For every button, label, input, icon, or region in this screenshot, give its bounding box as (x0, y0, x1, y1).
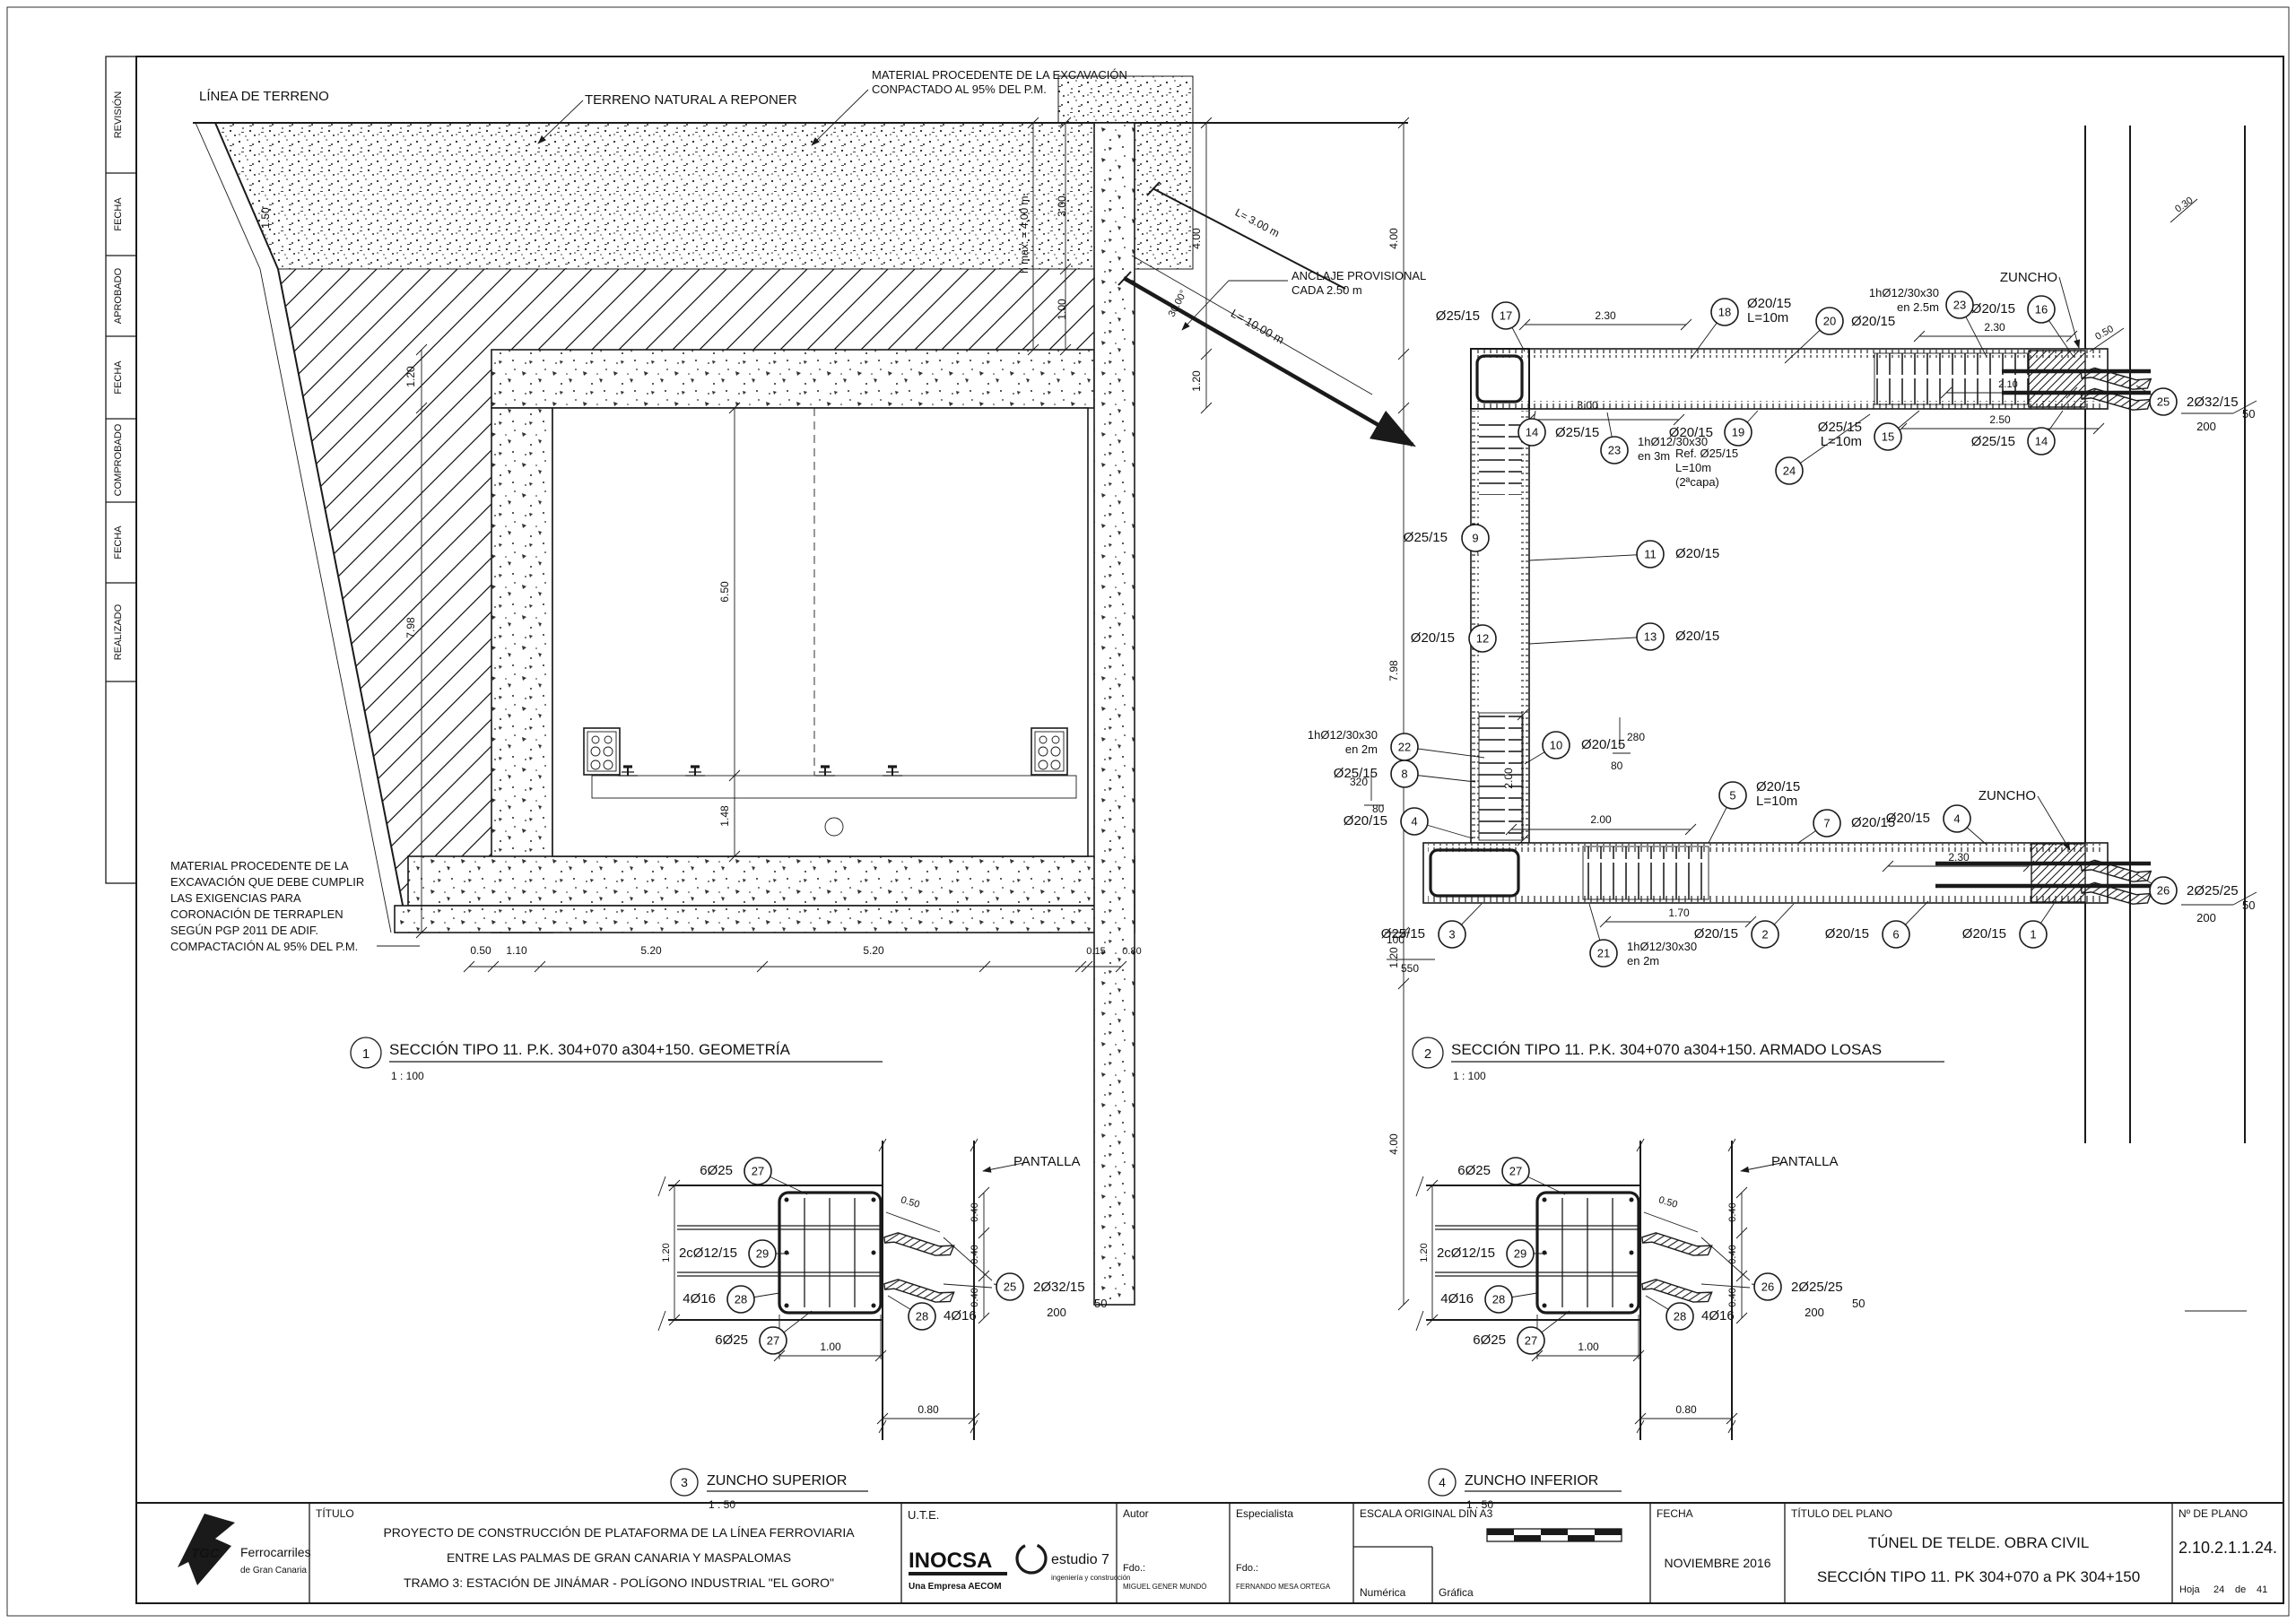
rebar-callout: 2 (1752, 904, 1794, 948)
annotation-label: 1.20 (1190, 370, 1203, 392)
callout-number: 15 (1882, 430, 1894, 444)
annotation-label: SEGÚN PGP 2011 DE ADIF. (170, 924, 318, 937)
drawing-title: SECCIÓN TIPO 11. P.K. 304+070 a304+150. … (1451, 1041, 1882, 1058)
rebar-callout: 25 (994, 1273, 1023, 1300)
annotation-label: Ø20/15 (1971, 301, 2015, 317)
callout-number: 24 (1783, 464, 1796, 478)
callout-number: 23 (1608, 444, 1621, 457)
annotation-label: 2.00 (1590, 813, 1612, 826)
drawing-title: ZUNCHO SUPERIOR (707, 1473, 847, 1488)
annotation-label: 7.98 (1387, 660, 1400, 681)
annotation-label: MATERIAL PROCEDENTE DE LA (170, 859, 349, 872)
callout-number: 2 (1761, 928, 1768, 942)
annotation-label: 0.40 (970, 1202, 980, 1221)
annotation-label: 1.20 (404, 366, 417, 387)
annotation-label: 1.70 (1668, 907, 1690, 919)
annotation-label: 50 (1852, 1297, 1865, 1310)
annotation-label: Ø20/15 (1411, 630, 1455, 646)
annotation-label: 3.00 (1577, 399, 1598, 412)
annotation-label: 5.20 (640, 944, 662, 957)
annotation-label: Ø25/15 (1971, 434, 2015, 449)
rebar-callout: 27 (1518, 1311, 1570, 1354)
rebar-callout: 28 (888, 1296, 935, 1330)
annotation-label: L=10m (1747, 310, 1788, 325)
annotation-label: Ø20/15 (1756, 779, 1800, 794)
callout-number: 17 (1500, 309, 1512, 323)
annotation-label: 1.20 (1419, 1243, 1430, 1262)
plan-sheet: REVISIÓN FECHA APROBADO FECHA COMPROBADO… (0, 0, 2296, 1623)
annotation-label: 2Ø25/25 (1791, 1280, 1843, 1295)
callout-number: 3 (1448, 928, 1455, 942)
annotation-label: 2.30 (1984, 321, 2005, 334)
numerica-label: Numérica (1360, 1586, 1406, 1599)
estudio7-logo-icon (1017, 1544, 1046, 1573)
callout-number: 7 (1823, 817, 1830, 830)
annotation-label: 4Ø16 (683, 1291, 716, 1306)
annotation-label: 550 (1401, 962, 1419, 975)
annotation-label: 1.00 (1056, 299, 1068, 320)
plano-line1: TÚNEL DE TELDE. OBRA CIVIL (1868, 1534, 2090, 1551)
annotation-label: 200 (2196, 420, 2216, 433)
annotation-label: CADA 2.50 m (1291, 283, 1362, 297)
callout-number: 10 (1550, 739, 1562, 752)
annotation-label: COMPACTACIÓN AL 95% DEL P.M. (170, 940, 358, 953)
annotation-label: Ø20/15 (1851, 314, 1895, 329)
rebar-callout: 6 (1883, 901, 1928, 948)
annotation-label: Ø20/15 (1747, 296, 1791, 311)
annotation-label: 4.00 (1387, 1133, 1400, 1155)
inocsa-sub: Una Empresa AECOM (909, 1582, 1002, 1592)
rebar-callout: 13 (1529, 623, 1664, 650)
autor-fdo: Fdo.: (1123, 1563, 1145, 1574)
callout-number: 23 (1953, 299, 1966, 312)
annotation-label: 0.80 (1675, 1403, 1697, 1416)
annotation-label: 0.15 (1086, 946, 1105, 957)
annotation-label: 0.50 (1657, 1194, 1679, 1210)
annotation-label: CORONACIÓN DE TERRAPLEN (170, 907, 344, 921)
annotation-label: Ø20/15 (1962, 926, 2006, 942)
annotation-label: 1.20 (1387, 947, 1400, 968)
annotation-label: 1.20 (661, 1243, 672, 1262)
annotation-label: 2cØ12/15 (679, 1245, 737, 1261)
project-title-line2: ENTRE LAS PALMAS DE GRAN CANARIA Y MASPA… (447, 1550, 791, 1565)
callout-number: 14 (1526, 426, 1538, 439)
annotation-label: en 2.5m (1897, 300, 1939, 314)
annotation-label: 80 (1611, 759, 1623, 772)
estudio7-logo: estudio 7 (1051, 1552, 1109, 1567)
annotation-label: h max. = 4.00 m. (1018, 193, 1031, 273)
annotation-label: 2.30 (1948, 851, 1970, 864)
annotation-label: Ø20/15 (1694, 926, 1738, 942)
rebar-callout: 28 (1485, 1286, 1537, 1313)
annotation-label: 2cØ12/15 (1437, 1245, 1495, 1261)
drawing-number: 3 (681, 1475, 688, 1489)
rebar-callout: 10 (1525, 732, 1570, 764)
rebar-callout: 1 (2020, 901, 2056, 948)
annotation-label: 0.50 (2093, 324, 2116, 343)
ute-label: U.T.E. (908, 1508, 939, 1522)
callout-number: 28 (1492, 1293, 1505, 1306)
project-title-line1: PROYECTO DE CONSTRUCCIÓN DE PLATAFORMA D… (383, 1525, 855, 1540)
annotation-label: 6Ø25 (700, 1163, 733, 1178)
drawing-title: ZUNCHO INFERIOR (1465, 1473, 1598, 1488)
annotation-label: EXCAVACIÓN QUE DEBE CUMPLIR (170, 875, 364, 889)
annotation-label: Ø20/15 (1344, 813, 1387, 829)
annotation-label: 0.50 (470, 944, 491, 957)
annotation-label: 1.50 (259, 207, 272, 229)
callout-number: 26 (1761, 1280, 1774, 1294)
callout-number: 14 (2035, 435, 2048, 448)
annotation-label: L=10m (1675, 461, 1711, 474)
annotation-label: 4Ø16 (944, 1308, 977, 1324)
sidebar-label: APROBADO (113, 267, 124, 324)
annotation-label: 1.00 (820, 1341, 841, 1353)
annotation-label: 0.40 (1727, 1288, 1738, 1306)
rebar-callout: 27 (1502, 1158, 1565, 1194)
callout-number: 16 (2035, 303, 2048, 317)
callout-number: 26 (2157, 884, 2170, 898)
rebar-callout: 21 (1589, 904, 1617, 967)
annotation-label: 2.00 (1502, 768, 1515, 789)
annotation-label: (2ªcapa) (1675, 475, 1719, 489)
rebar-callout: 4 (1944, 805, 1987, 845)
annotation-label: 1hØ12/30x30 (1627, 940, 1697, 953)
rebar-callout: 28 (727, 1286, 779, 1313)
annotation-label: 2.10 (1998, 379, 2017, 390)
rebar-callout: 11 (1529, 541, 1664, 568)
inocsa-logo: INOCSA (909, 1549, 992, 1573)
rebar-callout: 7 (1798, 810, 1840, 843)
annotation-label: 0.80 (1122, 946, 1141, 957)
sidebar-label: COMPROBADO (113, 423, 124, 496)
rebar-callout: 8 (1391, 760, 1475, 787)
rebar-callout: 12 (1469, 625, 1496, 653)
callout-number: 29 (1514, 1247, 1526, 1261)
annotation-label: 50 (2242, 898, 2255, 912)
project-title-line3: TRAMO 3: ESTACIÓN DE JINÁMAR - POLÍGONO … (404, 1575, 834, 1590)
plan-canvas: REVISIÓN FECHA APROBADO FECHA COMPROBADO… (0, 0, 2296, 1623)
callout-number: 27 (1509, 1165, 1522, 1178)
autor-label: Autor (1123, 1507, 1149, 1520)
callout-number: 27 (767, 1334, 779, 1348)
annotation-label: Ø25/15 (1555, 425, 1599, 440)
rebar-callout: 29 (749, 1240, 789, 1267)
tgc-logo-text: TGC (191, 1546, 221, 1561)
sidebar-label: FECHA (113, 525, 124, 560)
callout-number: 21 (1597, 947, 1610, 960)
annotation-label: ZUNCHO (1979, 788, 2036, 803)
annotation-label: 0.40 (1727, 1245, 1738, 1263)
revision-sidebar: REVISIÓN FECHA APROBADO FECHA COMPROBADO… (112, 91, 124, 661)
annotation-label: Ø25/15 (1436, 308, 1480, 324)
graphic-scale-bar (1487, 1529, 1622, 1541)
annotation-label: 0.40 (1727, 1202, 1738, 1221)
rebar-callout: 3 (1439, 904, 1482, 948)
annotation-label: en 2m (1627, 954, 1659, 968)
hoja-num: 24 (2213, 1584, 2224, 1595)
annotation-label: PANTALLA (1013, 1154, 1080, 1169)
callout-number: 25 (2157, 395, 2170, 409)
annotation-label: Ø20/15 (1581, 737, 1625, 752)
drawing-scale: 1 : 100 (391, 1070, 424, 1082)
annotation-label: TERRENO NATURAL A REPONER (585, 92, 797, 108)
annotation-label: 4.00 (1387, 228, 1400, 249)
rebar-callout: 26 (1752, 1273, 1781, 1300)
annotation-label: en 3m (1638, 449, 1670, 463)
section-2-reinforcement-drawing (1364, 126, 2257, 1311)
plano-line2: SECCIÓN TIPO 11. PK 304+070 a PK 304+150 (1817, 1568, 2140, 1585)
annotation-label: 6.50 (718, 581, 731, 603)
callout-number: 20 (1823, 315, 1836, 328)
tgc-logo-line1: Ferrocarriles (240, 1545, 311, 1559)
rebar-callout: 27 (744, 1158, 807, 1194)
annotation-label: ZUNCHO (2000, 270, 2057, 285)
annotation-label: LAS EXIGENCIAS PARA (170, 891, 301, 905)
annotation-label: Ø20/15 (1886, 811, 1930, 826)
annotation-label: 200 (1805, 1306, 1824, 1319)
annotation-label: 0.40 (970, 1245, 980, 1263)
callout-number: 25 (1004, 1280, 1016, 1294)
rebar-callout: 29 (1507, 1240, 1547, 1267)
rebar-callout: 19 (1725, 411, 1758, 446)
callout-number: 19 (1732, 426, 1744, 439)
rebar-callout: 14 (2028, 411, 2063, 455)
callout-number: 5 (1729, 789, 1735, 803)
annotation-label: 0.30 (2173, 195, 2195, 214)
annotation-label: 200 (1047, 1306, 1066, 1319)
annotation-label: 6Ø25 (1457, 1163, 1491, 1178)
annotation-label: 2.50 (1989, 413, 2011, 426)
autor-name: MIGUEL GENER MUNDÓ (1123, 1583, 1207, 1591)
rebar-callout: 28 (1646, 1296, 1693, 1330)
callout-number: 28 (735, 1293, 747, 1306)
annotation-label: Ø25/15 (1404, 530, 1448, 545)
callout-number: 18 (1718, 306, 1731, 319)
callout-number: 28 (1674, 1310, 1686, 1324)
annotation-label: en 2m (1345, 742, 1378, 756)
annotation-label: 50 (1094, 1297, 1107, 1310)
callout-number: 4 (1953, 812, 1960, 826)
annotation-label: 0.40 (970, 1288, 980, 1306)
num-plano-value: 2.10.2.1.1.24. (2179, 1539, 2277, 1557)
drawing-scale: 1 : 50 (709, 1498, 735, 1511)
annotation-label: Ø20/15 (1675, 546, 1719, 561)
especialista-name: FERNANDO MESA ORTEGA (1236, 1583, 1331, 1591)
especialista-label: Especialista (1236, 1507, 1293, 1520)
estudio7-sub: ingeniería y construcción (1051, 1574, 1131, 1582)
callout-number: 6 (1892, 928, 1899, 942)
callout-number: 27 (752, 1165, 764, 1178)
annotation-label: Ø20/15 (1669, 425, 1713, 440)
annotation-label: Ø25/15 (1818, 420, 1862, 435)
annotation-label: 1.48 (718, 805, 731, 827)
drawing-scale: 1 : 100 (1453, 1070, 1486, 1082)
callout-number: 12 (1476, 632, 1489, 646)
callout-number: 29 (756, 1247, 769, 1261)
num-plano-label: Nº DE PLANO (2179, 1507, 2248, 1520)
total-num: 41 (2257, 1584, 2267, 1595)
callout-number: 1 (2030, 928, 2036, 942)
sidebar-label: FECHA (113, 360, 124, 395)
drawing-title: SECCIÓN TIPO 11. P.K. 304+070 a304+150. … (389, 1041, 791, 1058)
annotation-label: PANTALLA (1771, 1154, 1838, 1169)
annotation-label: LÍNEA DE TERRENO (199, 89, 329, 104)
fecha-label: FECHA (1657, 1507, 1693, 1520)
annotation-label: L= 10.00 m (1229, 307, 1286, 347)
hoja-label: Hoja (2179, 1584, 2201, 1595)
annotation-label: 3.00 (1056, 195, 1068, 217)
drawing-number: 4 (1439, 1475, 1446, 1489)
annotation-label: 4Ø16 (1701, 1308, 1735, 1324)
escala-label: ESCALA ORIGINAL DIN A3 (1360, 1507, 1493, 1520)
rebar-callout: 27 (760, 1311, 812, 1354)
callout-number: 9 (1472, 532, 1478, 545)
sidebar-label: FECHA (113, 197, 124, 231)
annotation-label: L=10m (1821, 434, 1862, 449)
callout-number: 28 (916, 1310, 928, 1324)
annotation-label: 7.98 (404, 617, 417, 638)
annotation-label: 4.00 (1190, 228, 1203, 249)
de-label: de (2235, 1584, 2246, 1595)
annotation-label: 320 (1350, 776, 1368, 788)
callout-number: 13 (1644, 630, 1657, 644)
rebar-callout: 15 (1874, 411, 1919, 450)
rebar-callout: 23 (1601, 412, 1628, 464)
sidebar-label: REVISIÓN (112, 91, 124, 139)
annotation-label: 1hØ12/30x30 (1308, 728, 1378, 742)
especialista-fdo: Fdo.: (1236, 1563, 1258, 1574)
annotation-label: 6Ø25 (715, 1332, 748, 1348)
annotation-label: 1.10 (506, 944, 527, 957)
grafica-label: Gráfica (1439, 1586, 1474, 1599)
annotation-label: 100 (1387, 933, 1405, 946)
annotation-label: Ref. Ø25/15 (1675, 447, 1738, 460)
annotation-label: 0.50 (900, 1194, 921, 1210)
annotation-label: Ø20/15 (1825, 926, 1869, 942)
titulo-label: TÍTULO (316, 1506, 354, 1520)
title-block: TGC Ferrocarriles de Gran Canaria TÍTULO… (136, 1503, 2283, 1603)
annotation-label: 2Ø32/15 (1033, 1280, 1085, 1295)
plano-label: TÍTULO DEL PLANO (1791, 1506, 1892, 1520)
annotation-label: 2.30 (1595, 309, 1616, 322)
annotation-label: CONPACTADO AL 95% DEL P.M. (872, 82, 1047, 96)
rebar-callout: 17 (1492, 302, 1525, 352)
annotation-label: 200 (2196, 911, 2216, 924)
annotation-label: L=10m (1756, 794, 1797, 809)
annotation-label: Ø20/15 (1675, 629, 1719, 644)
callout-number: 8 (1401, 768, 1407, 781)
section-1-geometry-drawing (193, 76, 1413, 1310)
annotation-label: 50 (2242, 407, 2255, 421)
annotation-label: 0.80 (918, 1403, 939, 1416)
annotation-label: 280 (1627, 731, 1645, 743)
annotation-label: 6Ø25 (1473, 1332, 1506, 1348)
annotation-label: 5.20 (863, 944, 884, 957)
annotation-label: 4Ø16 (1440, 1291, 1474, 1306)
drawing-titles: 1 SECCIÓN TIPO 11. P.K. 304+070 a304+150… (351, 1037, 1944, 1511)
callout-number: 4 (1411, 815, 1417, 829)
callout-number: 22 (1398, 741, 1411, 754)
callout-number: 11 (1644, 548, 1657, 561)
annotation-label: 1hØ12/30x30 (1869, 286, 1939, 299)
rebar-callout: 4 (1401, 808, 1473, 838)
drawing-number: 2 (1424, 1046, 1431, 1062)
fecha-value: NOVIEMBRE 2016 (1664, 1556, 1770, 1570)
sidebar-label: REALIZADO (113, 603, 124, 660)
annotation-label: 1.00 (1578, 1341, 1599, 1353)
tgc-logo-line2: de Gran Canaria (240, 1566, 307, 1575)
annotation-label: ANCLAJE PROVISIONAL (1291, 269, 1426, 282)
annotation-label: MATERIAL PROCEDENTE DE LA EXCAVACIÓN (872, 68, 1127, 82)
callout-number: 27 (1525, 1334, 1537, 1348)
annotation-label: 2Ø25/25 (2187, 883, 2239, 898)
rebar-callout: 5 (1709, 782, 1746, 843)
drawing-number: 1 (362, 1046, 370, 1062)
annotation-label: 2Ø32/15 (2187, 395, 2239, 410)
